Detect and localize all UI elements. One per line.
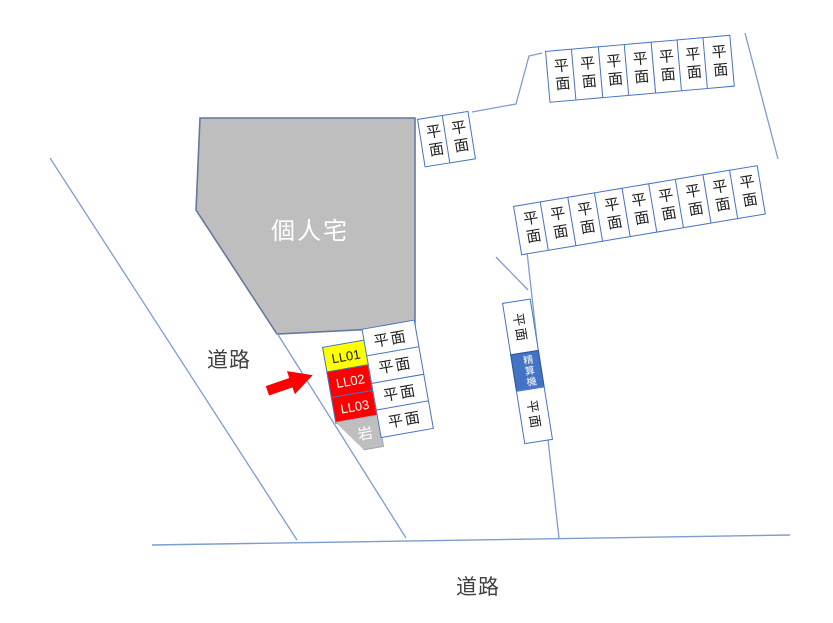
parking-space-label: 平面 [684, 46, 702, 83]
boundary-line-top-left [472, 53, 542, 112]
parking-space-label: 平面 [386, 406, 423, 433]
parking-space-label: 平面 [605, 52, 623, 89]
road-line-bottom [152, 535, 790, 545]
parking-row-pair: 平面平面 [417, 111, 476, 168]
space-LL01-label: LL01 [330, 347, 361, 367]
parking-space-label: 平面 [521, 209, 542, 247]
parking-space-label: 平面 [631, 50, 649, 87]
parking-space-label: 平面 [548, 205, 569, 243]
boundary-line-right [745, 33, 778, 159]
road-label-bottom: 道路 [456, 571, 500, 601]
parking-site-plan: 個人宅 道路 道路 平面平面平面平面平面平面平面 平面平面平面平面平面平面平面平… [0, 0, 833, 623]
space-LL03-label: LL03 [339, 397, 370, 417]
space-LL02-label: LL02 [335, 372, 366, 392]
parking-space-label: 平面 [449, 118, 469, 156]
parking-space-label: 平面 [575, 200, 596, 238]
parking-space-label: 平面 [509, 311, 532, 344]
parking-space-label: 平面 [710, 178, 731, 216]
parking-space-flat: 平面 [703, 35, 735, 89]
road-label-left: 道路 [207, 344, 251, 374]
parking-space-label: 平面 [602, 196, 623, 234]
parking-space-label: 平面 [372, 325, 409, 352]
parking-space-label: 平面 [657, 48, 675, 85]
parking-space-label: 平面 [710, 43, 728, 80]
parking-space-label: 平面 [737, 173, 758, 211]
site-plan-line-layer [0, 0, 833, 623]
rock-label: 岩 [356, 422, 374, 445]
parking-space-label: 平面 [552, 57, 570, 94]
parking-space-label: 平面 [523, 399, 546, 432]
parking-space-label: 平面 [683, 182, 704, 220]
parking-space-label: 平面 [424, 122, 444, 160]
private-house-label: 個人宅 [235, 211, 385, 246]
parking-space-label: 平面 [381, 379, 418, 406]
parking-space-label: 平面 [377, 352, 414, 379]
payment-machine-label: 精算機 [520, 354, 535, 388]
boundary-connector-line [496, 257, 528, 290]
parking-space-label: 平面 [578, 55, 596, 92]
parking-space-label: 平面 [629, 191, 650, 229]
parking-space-label: 平面 [656, 187, 677, 225]
